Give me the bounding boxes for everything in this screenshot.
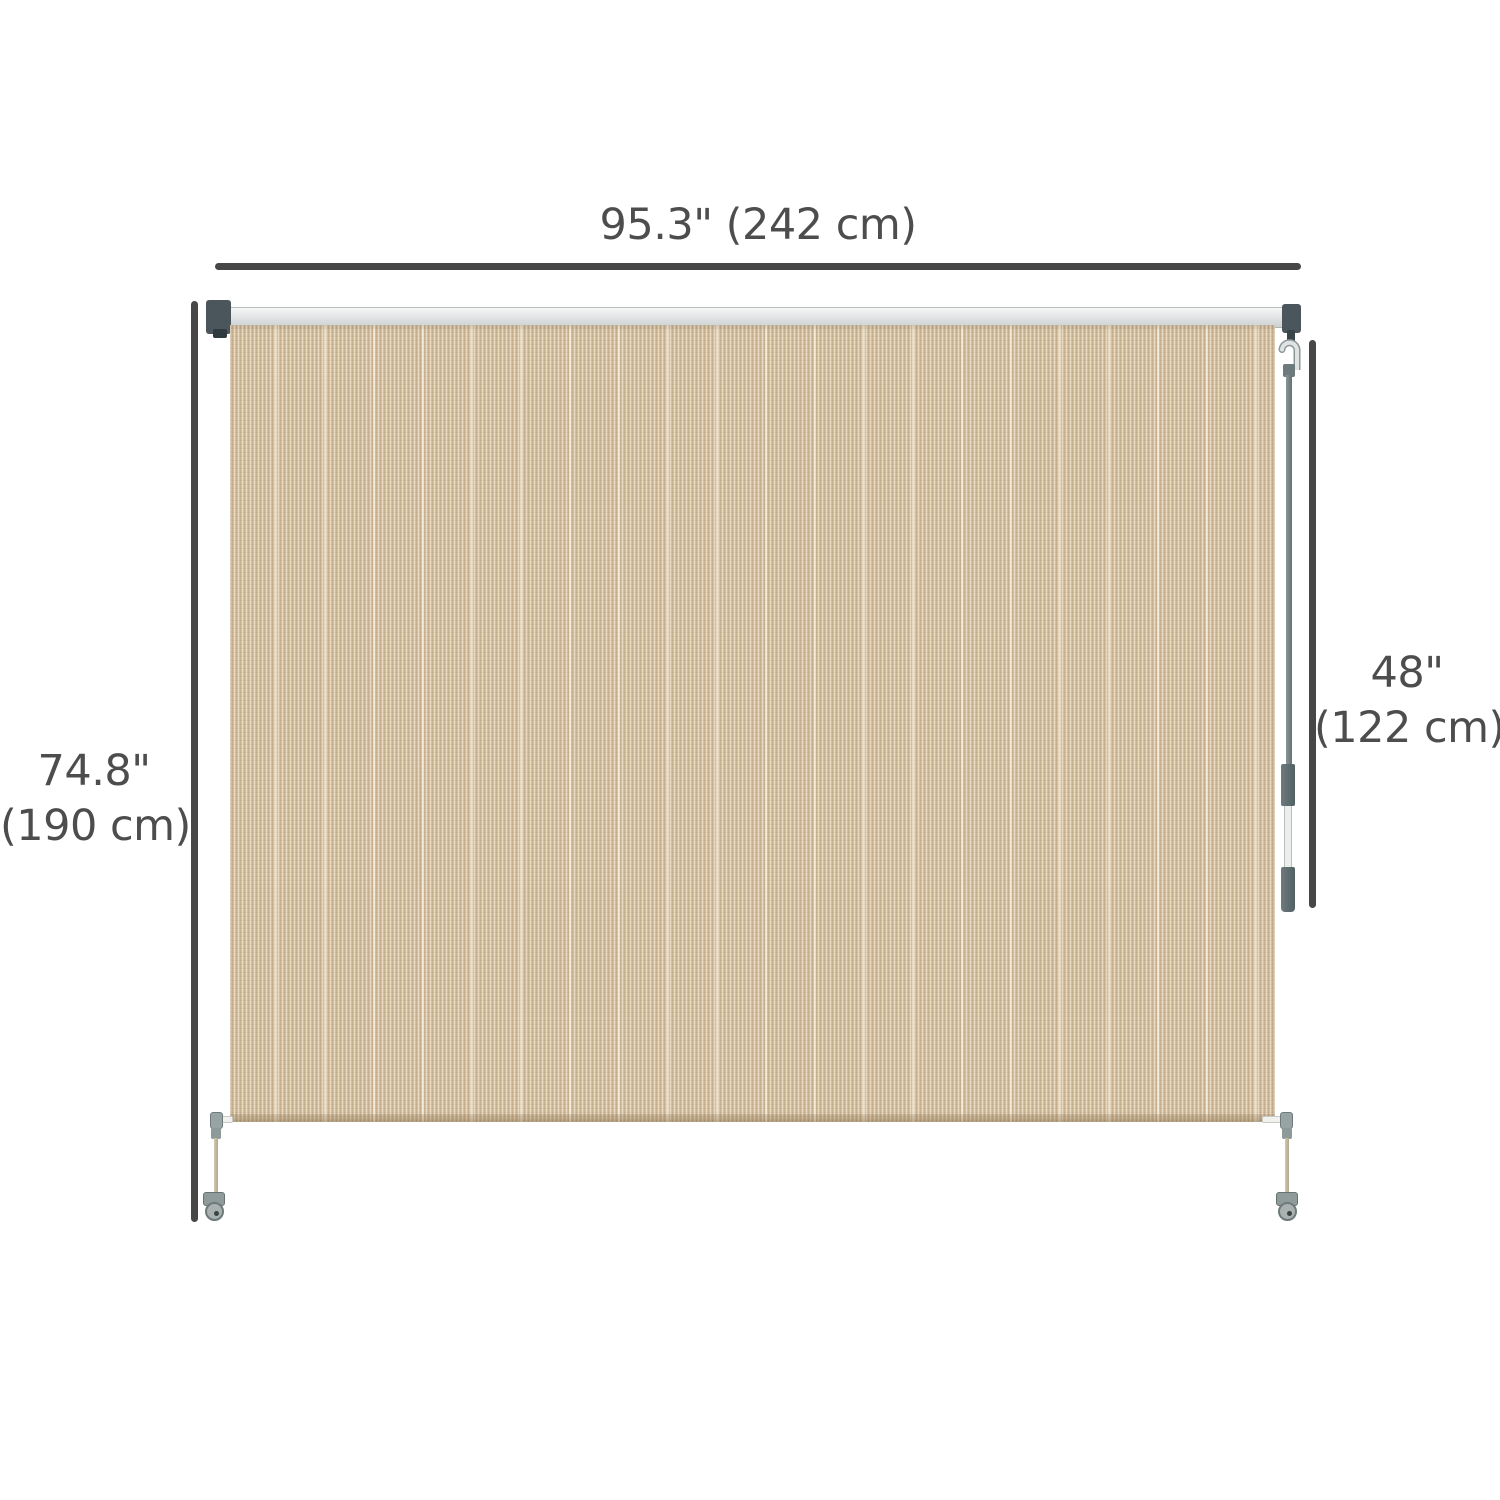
crank-dimension-metric: (122 cm) [1314, 701, 1500, 756]
right-clamp-screw [1287, 1211, 1292, 1216]
crank-dimension-value: 48" [1314, 646, 1500, 701]
left-clamp-screw [214, 1211, 219, 1216]
height-dimension-line [191, 301, 198, 1222]
width-dimension-label: 95.3" (242 cm) [599, 198, 916, 253]
right-cable-rod [1285, 1138, 1289, 1194]
fabric-hem [230, 1114, 1275, 1122]
product-diagram: 95.3" (242 cm) 74.8" (190 cm) 48" (122 c… [0, 0, 1500, 1500]
height-dimension-label: 74.8" (190 cm) [0, 744, 188, 854]
left-bracket-foot [213, 329, 227, 338]
left-cable-rod [214, 1138, 218, 1194]
height-dimension-metric: (190 cm) [0, 799, 188, 854]
shade-fabric [230, 325, 1275, 1122]
crank-pole-upper-grip [1281, 764, 1295, 806]
crank-dimension-label: 48" (122 cm) [1314, 646, 1500, 756]
right-mount-bracket [1282, 304, 1301, 333]
width-dimension-line [215, 263, 1301, 270]
crank-pole-white-segment [1284, 806, 1292, 867]
crank-dimension-line [1309, 340, 1316, 908]
crank-pole-handle-grip [1281, 867, 1295, 912]
right-corner-clip [1280, 1112, 1293, 1129]
left-corner-clip [210, 1112, 223, 1129]
right-corner-bar [1262, 1116, 1281, 1123]
height-dimension-value: 74.8" [0, 744, 188, 799]
crank-pole-rod [1286, 375, 1292, 767]
